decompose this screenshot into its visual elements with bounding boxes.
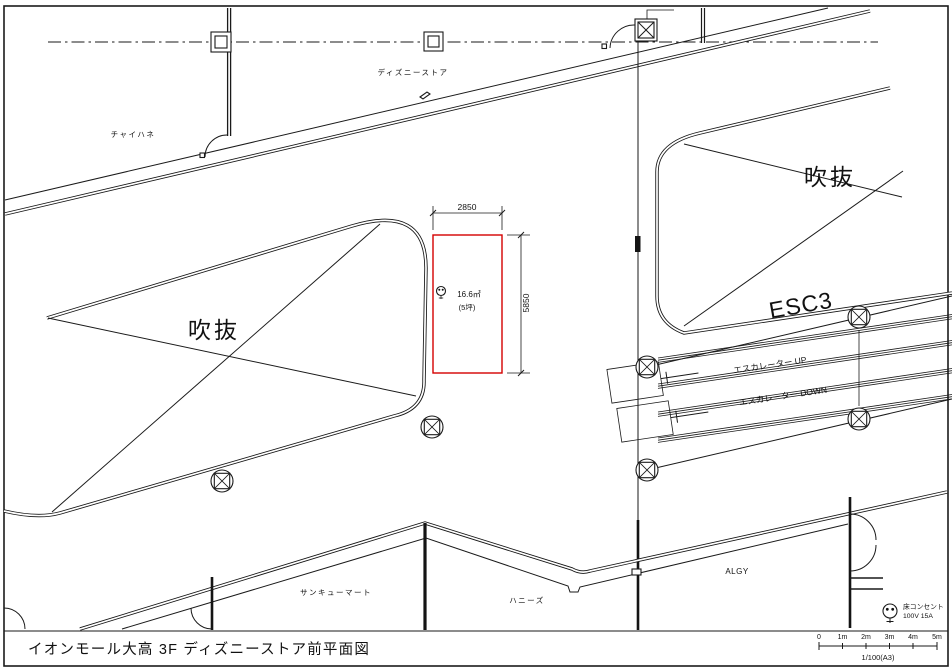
unit-width-dimension: 2850 [458,202,477,212]
floor-outlet-icon [437,287,446,300]
drawing-title: イオンモール大高 3F ディズニーストア前平面図 [28,640,370,658]
tenant-label-disney: ディズニーストア [377,67,448,77]
vacant-unit: 2850 5850 16.6㎡ (5坪) [430,202,531,376]
column-symbol [421,416,443,438]
column-symbol [848,306,870,328]
column-symbol [211,32,231,52]
scale-tick-label: 2m [861,634,871,641]
scale-tick-label: 5m [932,634,942,641]
legend-outlet-name: 床コンセント [903,602,944,611]
wall-junction [632,569,641,575]
central-column-line [635,41,641,630]
escalator-up-label: エスカレーター UP [733,355,808,376]
escalator-opening-edge [647,399,952,470]
door-swing-arc [191,608,212,629]
escalator-number-label: ESC3 [767,287,835,324]
unit-area-label: 16.6㎡ [457,290,481,299]
scale-tick-label: 4m [908,634,918,641]
column-symbol [211,470,233,492]
door-swing-arc [205,135,227,157]
door-swing-arc [4,608,25,629]
column-symbol [636,459,658,481]
outlet-legend: 床コンセント 100V 15A [883,602,944,623]
escalator-landings [607,356,711,443]
void-label-left: 吹抜 [188,317,240,343]
escalator-down-label: エスカレーター DOWN [738,384,827,407]
title-block: イオンモール大高 3F ディズニーストア前平面図 [28,640,370,658]
void-x-diagonal [684,144,902,197]
storefront-door-marker [420,92,430,99]
unit-tsubo-label: (5坪) [459,303,476,312]
door-swing-arc [850,514,876,540]
floor-plan-drawing: 2850 5850 16.6㎡ (5坪) チャイハネ ディズニーストア サンキュ… [0,0,952,672]
void-label-right: 吹抜 [804,164,856,190]
column-symbol [424,32,443,51]
door-swing-arc [850,545,876,571]
labels: チャイハネ ディズニーストア サンキューマート ハニーズ ALGY 吹抜 吹抜 … [111,67,856,605]
door-swing-arc [610,25,635,48]
scale-bar: 0 1m 2m 3m 4m 5m 1/100(A3) [817,634,942,662]
south-walls [4,492,947,630]
chaihane-wall [200,8,231,158]
tenant-label-algy: ALGY [725,567,749,576]
scale-tick-label: 0 [817,634,821,641]
legend-outlet-spec: 100V 15A [903,613,933,620]
door-stop-marker [602,44,607,49]
escalator-rails [658,315,952,443]
unit-height-dimension: 5850 [521,293,531,312]
floor-outlet-icon [883,604,897,623]
tenant-label-thankyou-mart: サンキューマート [300,588,372,597]
door-stop-marker [200,153,205,158]
floor-plan-sheet: 2850 5850 16.6㎡ (5坪) チャイハネ ディズニーストア サンキュ… [0,0,952,672]
tenant-label-chaihane: チャイハネ [111,130,156,139]
top-right-mullion [702,8,705,43]
column-symbol [848,408,870,430]
tenant-label-honeys: ハニーズ [509,595,545,605]
scale-tick-label: 3m [885,634,895,641]
scale-ratio-label: 1/100(A3) [862,653,895,662]
scale-tick-label: 1m [838,634,848,641]
left-void [4,220,426,515]
escalators [607,296,952,470]
column-symbol [636,356,658,378]
wall-segment [635,236,641,252]
crossed-box-column-symbol [635,10,674,41]
